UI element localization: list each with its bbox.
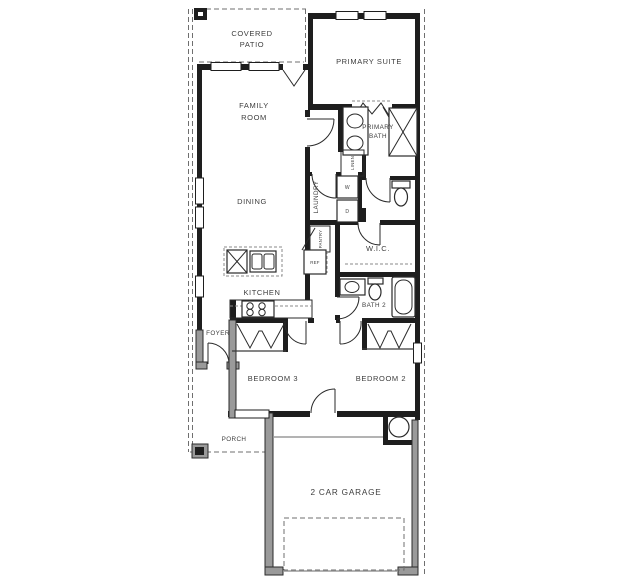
- room-label-covered-patio-2: PATIO: [240, 40, 264, 49]
- kitchen-counter: [230, 300, 312, 318]
- wic-door: [358, 223, 380, 245]
- bedroom3-left-wall: [229, 320, 236, 418]
- front-door: [208, 343, 229, 364]
- kitchen-window: [196, 276, 204, 297]
- bedroom3-closet-rod: [237, 324, 284, 348]
- label-refrigerator: REF: [310, 260, 319, 265]
- bath2-door: [337, 297, 359, 319]
- bath2-toilet: [368, 278, 383, 284]
- toilet-icon: [392, 181, 410, 206]
- room-label-garage: 2 CAR GARAGE: [310, 488, 381, 497]
- floor-plan-page: COVERED PATIO PRIMARY SUITE FAMILY ROOM …: [0, 0, 617, 582]
- toilet-room-door: [366, 178, 390, 202]
- suite-window-1: [336, 12, 358, 20]
- bedroom2-door: [340, 321, 361, 344]
- family-window-1: [211, 63, 241, 71]
- dining-window-2: [196, 207, 204, 228]
- room-label-wic: W.I.C.: [366, 244, 390, 253]
- room-label-kitchen: KITCHEN: [243, 288, 280, 297]
- bedroom2-window: [414, 343, 422, 363]
- room-label-laundry: LAUNDRY: [313, 180, 320, 213]
- label-linen: LINEN: [350, 156, 355, 170]
- bedroom2-closet-rod: [368, 324, 411, 348]
- label-dryer: D: [345, 209, 349, 215]
- room-label-primary-suite: PRIMARY SUITE: [336, 57, 402, 66]
- garage-right-wall: [412, 420, 418, 575]
- room-label-porch: PORCH: [222, 436, 247, 443]
- room-label-foyer: FOYER: [206, 330, 230, 337]
- patio-door: [283, 70, 305, 86]
- garage-entry-door: [311, 389, 335, 413]
- bedroom3-door: [285, 321, 306, 344]
- suite-window-2: [364, 12, 386, 20]
- room-label-bedroom3: BEDROOM 3: [248, 374, 298, 383]
- room-label-bedroom2: BEDROOM 2: [356, 374, 406, 383]
- shower: [389, 108, 417, 156]
- secondary-walls: [192, 320, 418, 575]
- dining-window-1: [196, 178, 204, 204]
- floor-plan-drawing: COVERED PATIO PRIMARY SUITE FAMILY ROOM …: [0, 0, 617, 582]
- bedroom3-window: [235, 410, 269, 418]
- garage-parking-dashed: [284, 518, 404, 570]
- room-label-family-room: FAMILY: [239, 101, 269, 110]
- label-pantry: PANTRY: [318, 230, 323, 249]
- kitchen-island: [224, 247, 282, 276]
- fixtures: [224, 107, 417, 571]
- room-label-family-room-2: ROOM: [241, 113, 267, 122]
- family-window-2: [249, 63, 279, 71]
- hall-door: [307, 119, 334, 146]
- room-label-dining: DINING: [237, 197, 267, 206]
- cooktop-icon: [242, 301, 274, 317]
- room-label-primary-bath: PRIMARY: [362, 124, 394, 131]
- water-heater-icon: [389, 417, 409, 437]
- room-label-covered-patio: COVERED: [231, 29, 272, 38]
- label-washer: W: [345, 185, 350, 191]
- room-label-primary-bath-2: BATH: [369, 133, 387, 140]
- room-label-bath2: BATH 2: [362, 302, 386, 309]
- garage-left-wall: [265, 413, 273, 575]
- foyer-left-wall: [196, 330, 203, 364]
